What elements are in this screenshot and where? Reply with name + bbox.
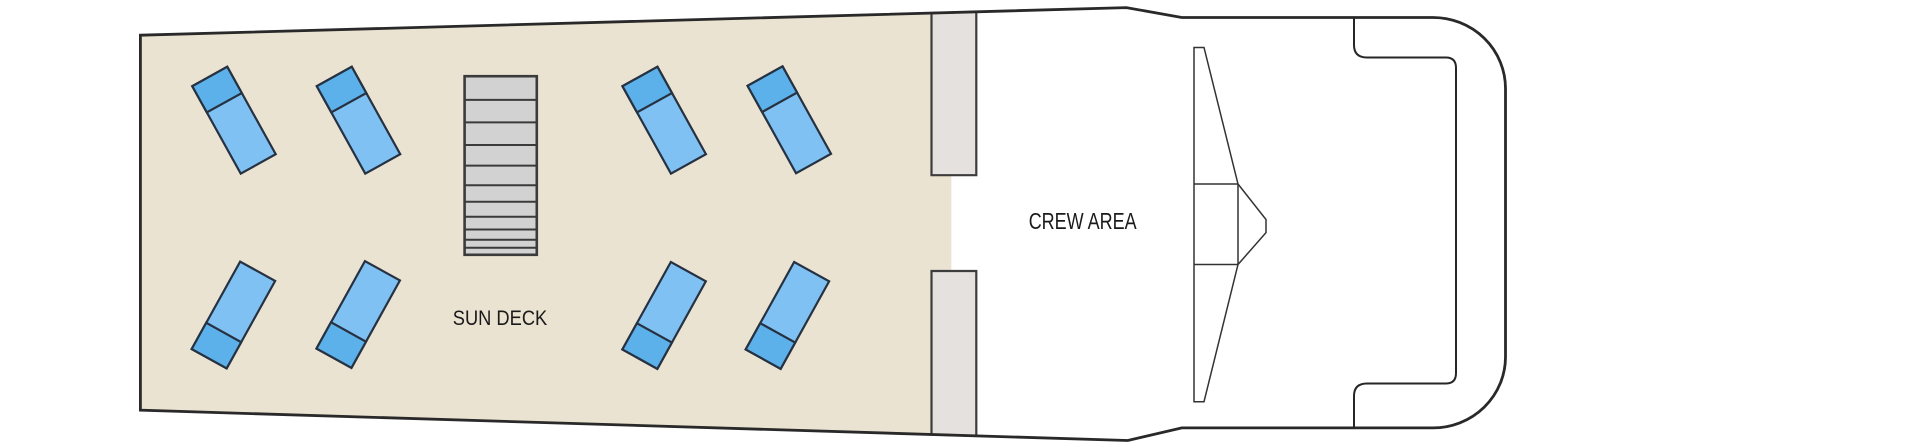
svg-text:SUN DECK: SUN DECK [453, 307, 548, 330]
svg-text:CREW AREA: CREW AREA [1029, 208, 1137, 234]
